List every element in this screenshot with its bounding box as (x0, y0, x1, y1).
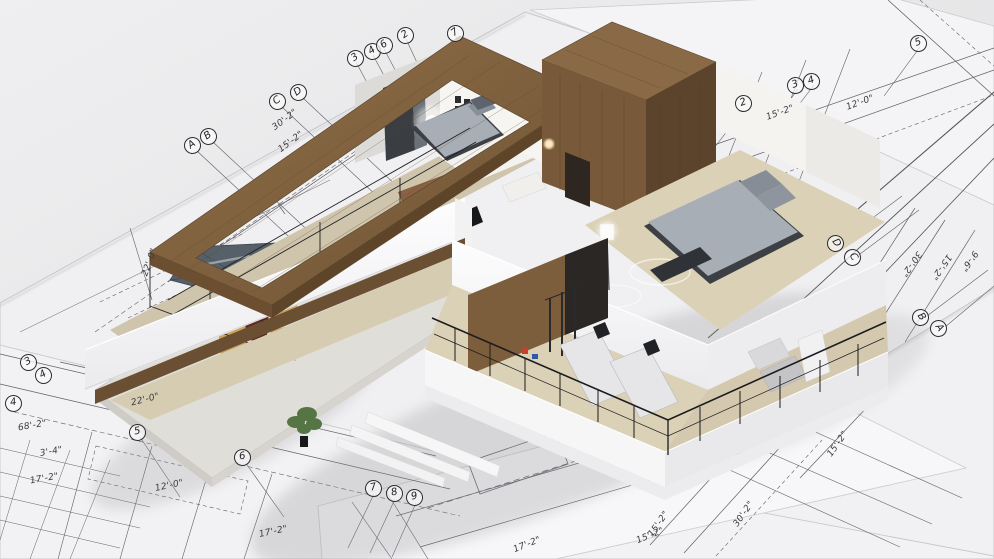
gym-accent-blue (532, 354, 538, 359)
scene-canvas (0, 0, 994, 559)
gym-accent-red (522, 348, 528, 354)
gym-dark-panel (565, 238, 608, 335)
wall-sconce-glow (544, 139, 554, 149)
architectural-render-scene: 30'-2"15'-2"15'-2"12'-0"30'-2"15'-2"9'-6… (0, 0, 994, 559)
